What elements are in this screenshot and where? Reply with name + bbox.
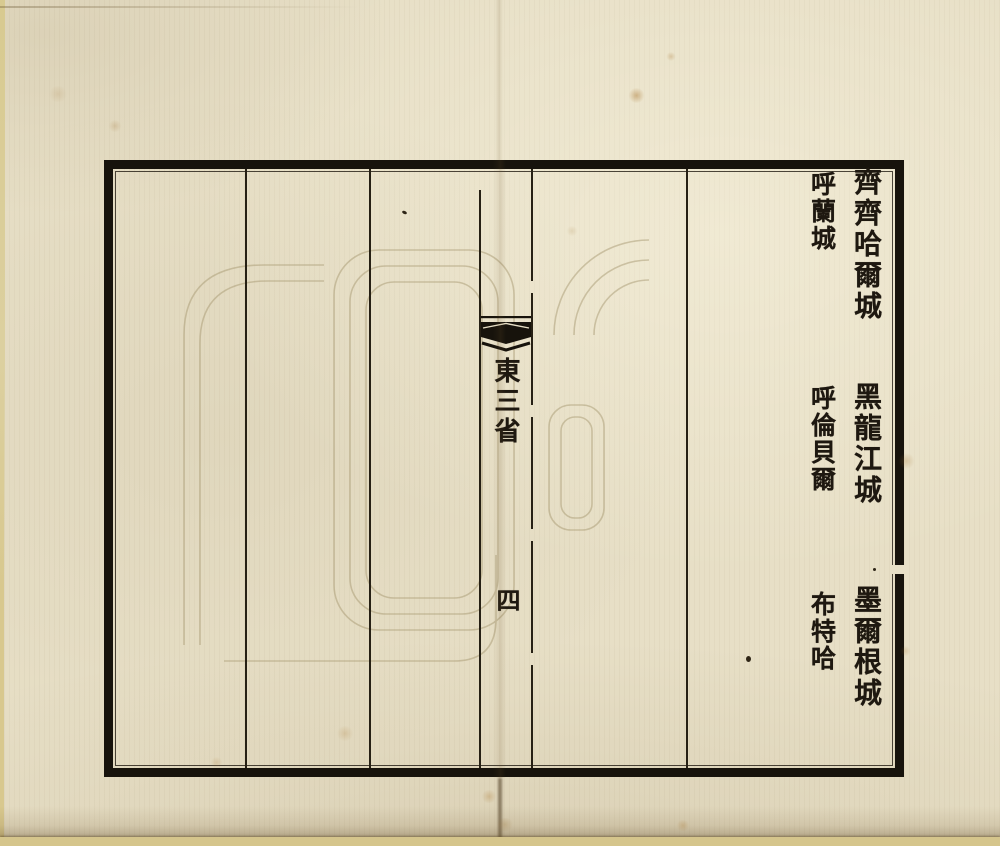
inner-border: [115, 171, 893, 766]
paper-edge-strip-left: [0, 0, 5, 592]
entry-secondary-3: 布特哈: [807, 591, 835, 672]
page-number-text: 四: [493, 588, 517, 612]
entry-primary-3-text: 墨爾根城: [851, 585, 879, 709]
column-divider: [686, 169, 688, 768]
entry-primary-1: 齊齊哈爾城: [849, 167, 881, 322]
scan-background: 東三省 四 齊齊哈爾城 黑龍江城 墨爾根城 呼蘭城 呼倫貝爾: [0, 0, 1000, 846]
entry-secondary-3-text: 布特哈: [809, 591, 834, 672]
border-wear-gap: [890, 565, 905, 574]
entry-secondary-2: 呼倫貝爾: [807, 385, 835, 493]
section-title: 東三省: [480, 357, 530, 447]
paper-sheet: 東三省 四 齊齊哈爾城 黑龍江城 墨爾根城 呼蘭城 呼倫貝爾: [4, 0, 1000, 838]
section-title-text: 東三省: [492, 357, 518, 447]
column-divider: [245, 169, 247, 768]
entry-secondary-1: 呼蘭城: [807, 171, 835, 252]
column-divider: [369, 169, 371, 768]
entry-primary-2-text: 黑龍江城: [851, 382, 879, 506]
page-frame: 東三省 四 齊齊哈爾城 黑龍江城 墨爾根城 呼蘭城 呼倫貝爾: [104, 160, 904, 777]
entry-primary-1-text: 齊齊哈爾城: [851, 167, 879, 322]
entry-primary-3: 墨爾根城: [849, 585, 881, 709]
entry-secondary-2-text: 呼倫貝爾: [809, 385, 834, 493]
entry-primary-2: 黑龍江城: [849, 382, 881, 506]
column-divider: [479, 190, 481, 768]
entry-secondary-1-text: 呼蘭城: [809, 171, 834, 252]
fishtail-icon: [481, 316, 531, 354]
page-number: 四: [480, 588, 530, 612]
paper-edge-strip-bottom: [0, 837, 1000, 846]
column-divider: [531, 169, 533, 768]
